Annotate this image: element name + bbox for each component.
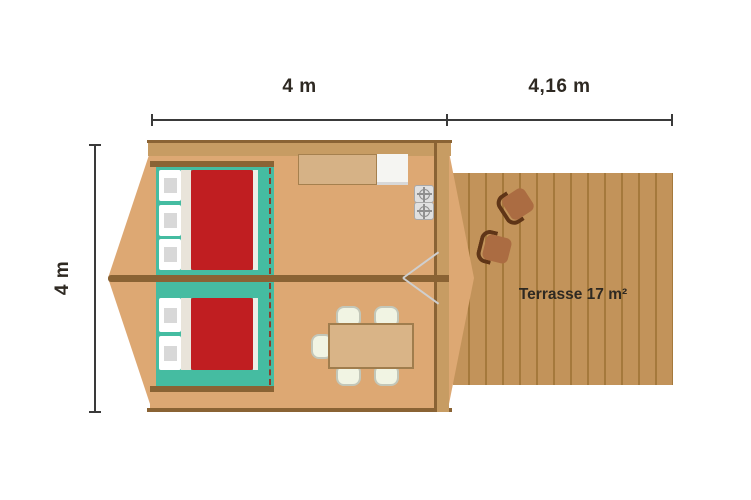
pillow bbox=[159, 239, 181, 270]
dimension-line-top bbox=[152, 119, 672, 121]
pillow bbox=[159, 336, 181, 370]
cabin-middle-wall bbox=[108, 275, 449, 282]
dimension-tick bbox=[89, 144, 101, 146]
terrace-area-label: Terrasse 17 m² bbox=[463, 286, 683, 304]
stove-cell bbox=[414, 185, 434, 203]
bed-mattress bbox=[191, 298, 253, 370]
pillow bbox=[159, 298, 181, 332]
bedroom-bottom-frame bbox=[150, 386, 274, 392]
terrace-deck bbox=[453, 173, 673, 385]
floor-plan: 4 m 4,16 m 4 m Terrasse 17 m² bbox=[0, 0, 751, 500]
fridge-edge bbox=[377, 182, 408, 185]
dimension-tick bbox=[89, 411, 101, 413]
cabin-height-label: 4 m bbox=[52, 246, 78, 310]
pillow-pad bbox=[164, 213, 177, 228]
stove-burner-icon bbox=[419, 206, 430, 217]
kitchen-counter bbox=[298, 154, 377, 185]
bedroom-curtain-dashed-line bbox=[269, 168, 271, 274]
stove bbox=[414, 185, 434, 221]
pillow-pad bbox=[164, 346, 177, 361]
bed-double bbox=[159, 298, 259, 370]
fridge bbox=[377, 154, 408, 182]
dimension-tick bbox=[446, 114, 448, 126]
pillow bbox=[159, 205, 181, 236]
dining-table bbox=[328, 323, 414, 369]
bed-sheet bbox=[181, 298, 191, 370]
pillow bbox=[159, 170, 181, 201]
terrace-width-label: 4,16 m bbox=[447, 76, 672, 98]
bedroom-curtain-dashed-line bbox=[269, 283, 271, 385]
bed-edge bbox=[253, 170, 258, 270]
cabin-width-label: 4 m bbox=[152, 76, 447, 98]
dimension-line-left bbox=[94, 145, 96, 413]
bed-edge bbox=[253, 298, 258, 370]
stove-cell bbox=[414, 202, 434, 220]
dimension-tick bbox=[671, 114, 673, 126]
cabin-bottom-wall bbox=[147, 408, 452, 412]
stove-burner-icon bbox=[419, 189, 430, 200]
dimension-tick bbox=[151, 114, 153, 126]
bed-triple bbox=[159, 170, 259, 270]
pillow-pad bbox=[164, 308, 177, 323]
pillow-pad bbox=[164, 247, 177, 262]
bed-sheet bbox=[181, 170, 191, 270]
bed-mattress bbox=[191, 170, 253, 270]
pillow-pad bbox=[164, 178, 177, 193]
